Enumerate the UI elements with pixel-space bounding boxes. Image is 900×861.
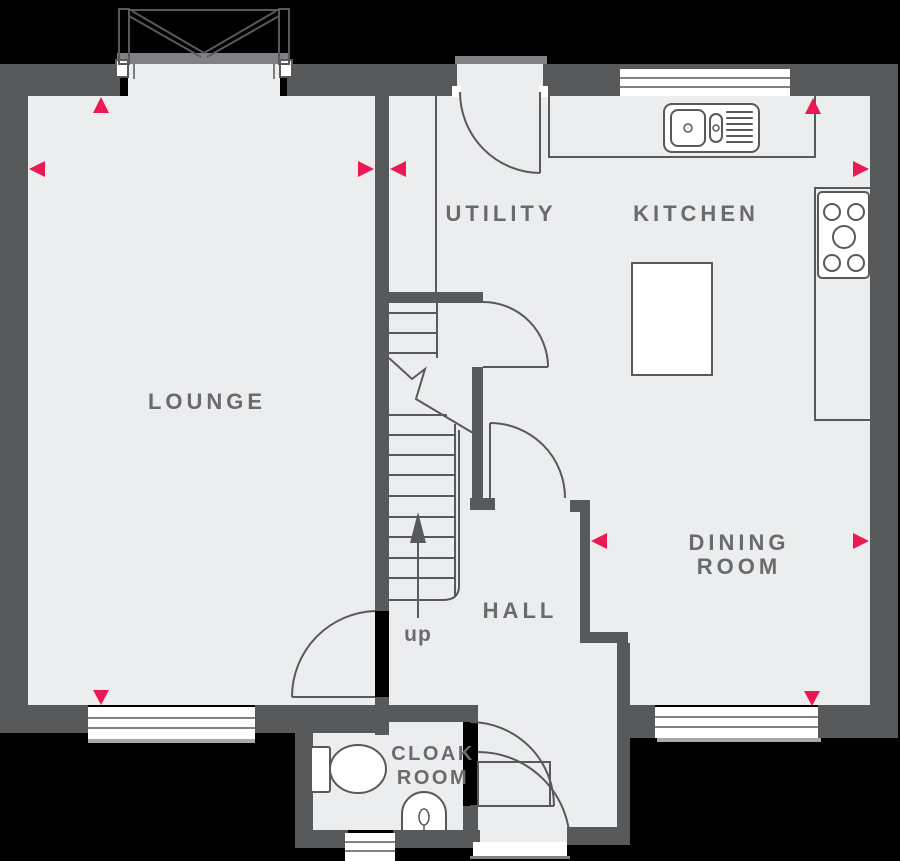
wall-top-mid xyxy=(287,64,457,96)
back-door-sill xyxy=(455,56,547,64)
cloak-label-line2: ROOM xyxy=(397,767,469,789)
french-door-jamb-foot-left xyxy=(116,60,128,77)
hob xyxy=(818,192,869,278)
kitchen-window xyxy=(620,69,790,96)
wall-hall-jog xyxy=(580,632,628,643)
kitchen-label: KITCHEN xyxy=(633,201,759,226)
wall-hall-west xyxy=(472,367,483,498)
floorplan-canvas: LOUNGE UTILITY KITCHEN DINING ROOM HALL … xyxy=(0,0,900,861)
toilet xyxy=(311,745,386,793)
french-door-opening xyxy=(128,64,280,96)
wall-vestibule-east xyxy=(617,643,630,845)
wall-hall-west-stub xyxy=(470,498,495,510)
stairs-up-label: up xyxy=(404,623,432,646)
cloak-label-line1: CLOAK xyxy=(391,743,475,765)
wall-top-utility xyxy=(543,64,620,96)
floorplan-svg: LOUNGE UTILITY KITCHEN DINING ROOM HALL … xyxy=(0,0,900,861)
kitchen-island xyxy=(632,263,712,375)
lounge-label: LOUNGE xyxy=(148,389,266,414)
wall-lounge-bottom-left xyxy=(0,705,88,733)
utility-label: UTILITY xyxy=(445,201,556,226)
dining-window xyxy=(655,707,821,742)
front-door-step xyxy=(470,856,570,859)
hall-vestibule-floor-lower xyxy=(478,827,567,842)
wall-dining-bottom-right xyxy=(818,705,898,738)
wall-centre xyxy=(375,64,389,611)
hall-label: HALL xyxy=(483,598,558,623)
wall-hall-dining xyxy=(580,500,590,632)
wall-vestibule-bottom xyxy=(567,827,630,845)
wall-right xyxy=(870,64,898,738)
kitchen-dining-floor xyxy=(389,96,870,705)
wall-dining-bottom-left xyxy=(630,705,655,738)
basin xyxy=(402,792,446,831)
back-door-opening xyxy=(457,64,543,96)
kitchen-sink xyxy=(664,104,759,152)
lounge-window xyxy=(88,707,255,743)
wall-left xyxy=(0,64,28,733)
cloakroom-window xyxy=(345,833,395,861)
wall-cloak-bottom-left xyxy=(295,830,348,848)
wall-cloak-top xyxy=(313,705,478,722)
dining-label-line2: ROOM xyxy=(697,554,781,579)
wall-above-kitchen-window xyxy=(620,64,790,69)
french-door-jamb-foot-right xyxy=(280,60,292,77)
dining-label-line1: DINING xyxy=(689,530,790,555)
hall-vestibule-floor xyxy=(478,705,617,827)
wall-stair-stub xyxy=(389,292,483,303)
french-door-sill xyxy=(117,53,290,64)
front-door-threshold xyxy=(473,842,567,856)
wall-front-door-jamb xyxy=(463,806,478,842)
